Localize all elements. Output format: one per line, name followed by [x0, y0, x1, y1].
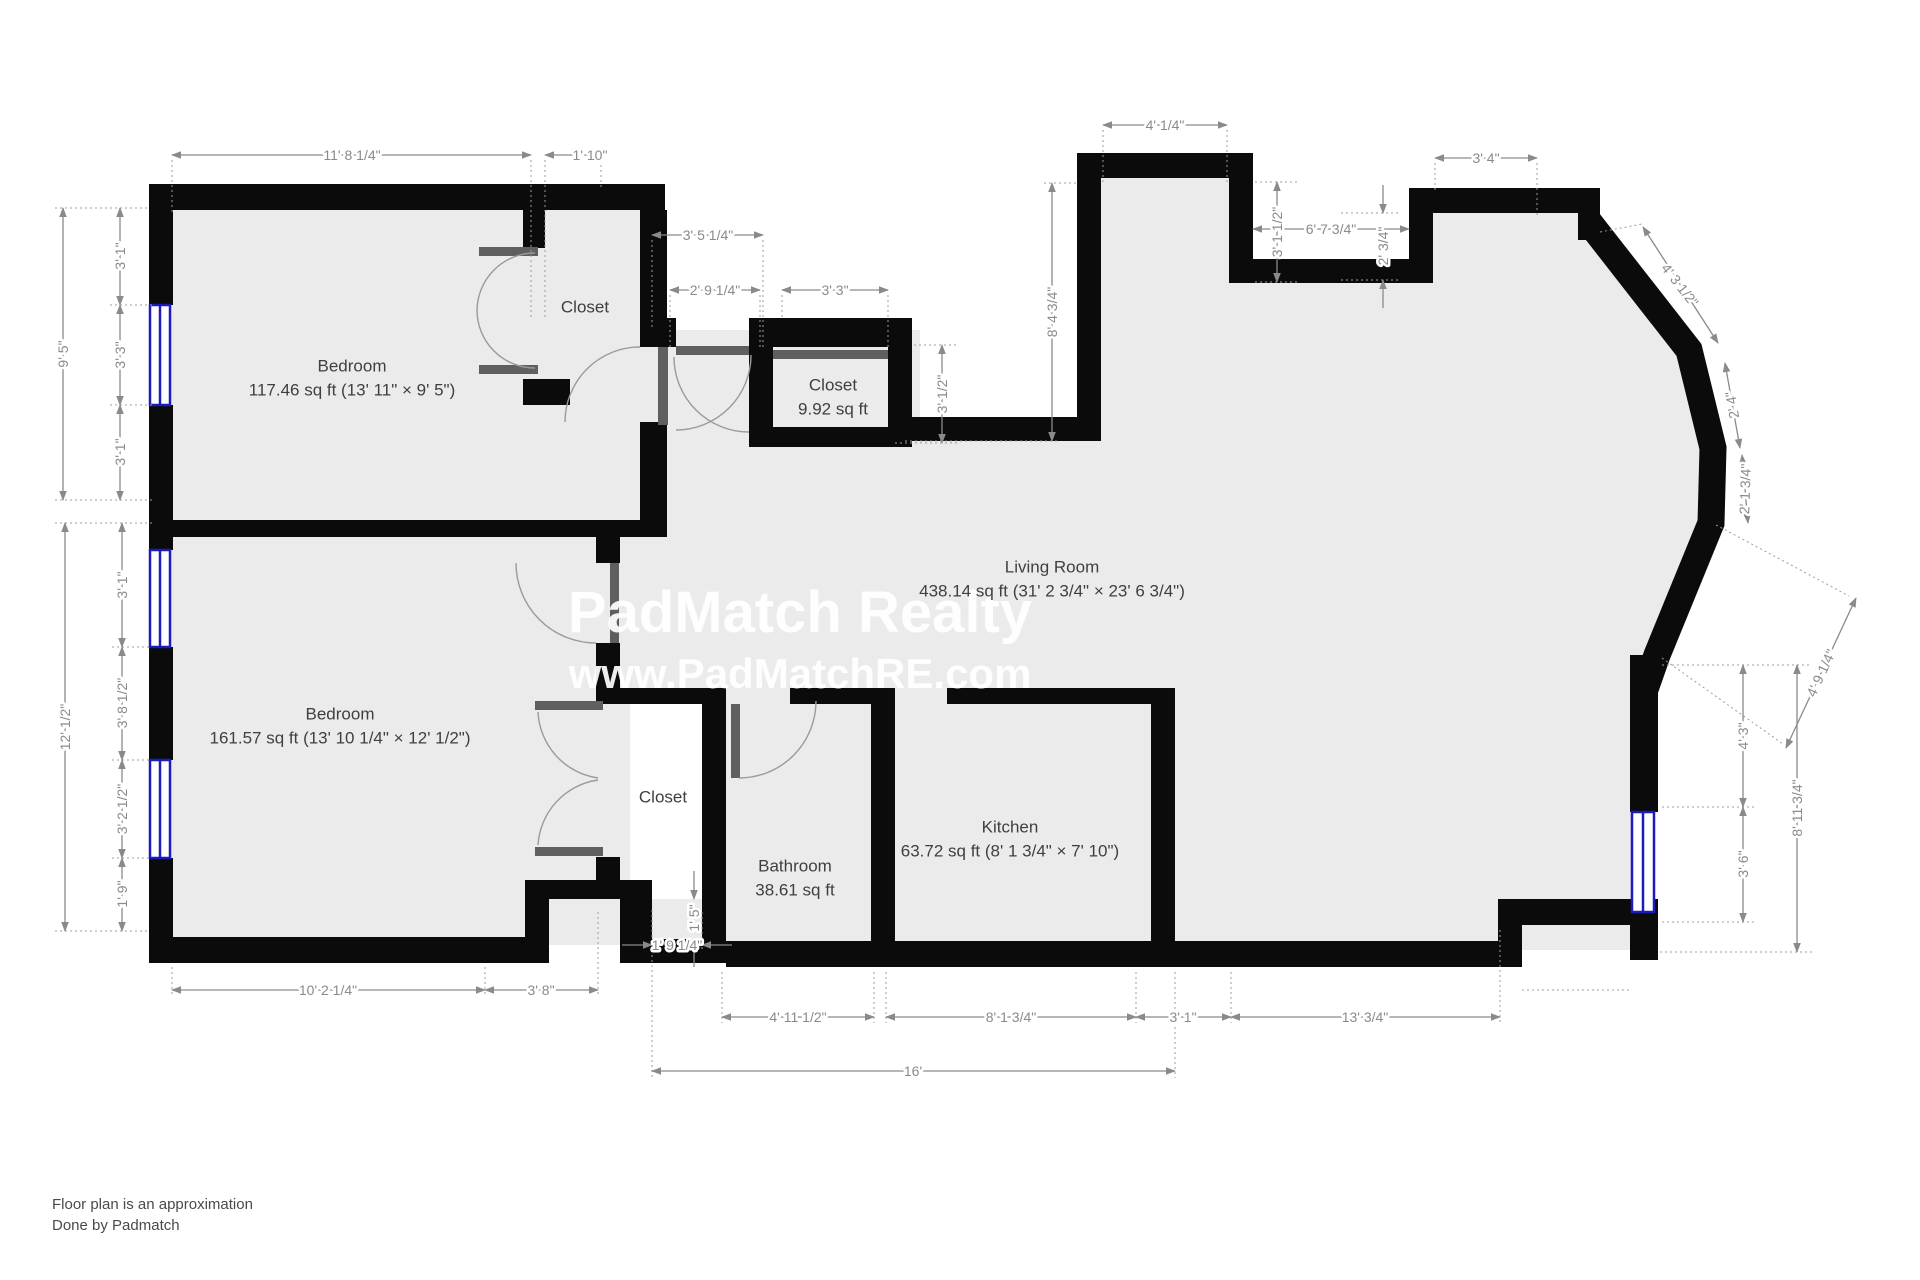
room-area-closet-hall: 9.92 sq ft — [798, 400, 868, 419]
dimension-label: 3' 1" — [1169, 1009, 1196, 1025]
dimension-label: 2' 4" — [1722, 390, 1742, 420]
dimension-label: 3' 5 1/4" — [683, 227, 733, 243]
dimension-label: 4' 11 1/2" — [769, 1009, 826, 1025]
dimension-label: 3' 1" — [114, 571, 130, 598]
room-area-living-room: 438.14 sq ft (31' 2 3/4" × 23' 6 3/4") — [919, 582, 1185, 601]
dimension-label: 3' 1 1/2" — [1269, 207, 1285, 257]
room-label-bedroom-2: Bedroom — [306, 705, 375, 724]
room-label-closet-hall: Closet — [809, 376, 857, 395]
room-area-bedroom-2: 161.57 sq ft (13' 10 1/4" × 12' 1/2") — [210, 729, 471, 748]
dimension-label: 3' 2 1/2" — [114, 784, 130, 834]
room-label-bathroom: Bathroom — [758, 857, 832, 876]
room-area-bedroom-1: 117.46 sq ft (13' 11" × 9' 5") — [249, 381, 455, 400]
room-label-kitchen: Kitchen — [982, 818, 1039, 837]
dimension-label: 2' 9 1/4" — [690, 282, 740, 298]
dimension-label: 3' 4" — [1472, 150, 1499, 166]
dimension-label: 1' 10" — [573, 147, 608, 163]
dimension-label: 12' 1/2" — [57, 704, 73, 751]
room-label-bedroom-1: Bedroom — [318, 357, 387, 376]
window — [150, 760, 170, 858]
dimension-label: 11' 8 1/4" — [323, 147, 380, 163]
footer-line-2: Done by Padmatch — [52, 1215, 253, 1236]
dimension-label: 16' — [904, 1063, 922, 1079]
dimension-label: 13' 3/4" — [1342, 1009, 1389, 1025]
room-area-kitchen: 63.72 sq ft (8' 1 3/4" × 7' 10") — [901, 842, 1119, 861]
dimension-label: 8' 11 3/4" — [1789, 779, 1805, 836]
room-area-bathroom: 38.61 sq ft — [755, 881, 835, 900]
dimension-label: 3' 3" — [821, 282, 848, 298]
window — [150, 550, 170, 647]
dimension-label: 4' 9 1/4" — [1803, 647, 1839, 700]
dimension-label: 3' 1/2" — [934, 375, 950, 414]
dimension-label: 3' 8" — [527, 982, 554, 998]
dimension-label: 1' 9 1/4" — [652, 937, 702, 953]
footer-note: Floor plan is an approximation Done by P… — [52, 1194, 253, 1236]
floor-plan: PadMatch Realty www.PadMatchRE.com — [0, 0, 1920, 1280]
window — [150, 305, 170, 405]
window — [1632, 812, 1654, 912]
dimension-label: 8' 1 3/4" — [986, 1009, 1036, 1025]
dimension-label: 9' 5" — [55, 340, 71, 367]
footer-line-1: Floor plan is an approximation — [52, 1194, 253, 1215]
dimension-label: 3' 8 1/2" — [114, 678, 130, 728]
dimension-label: 10' 2 1/4" — [299, 982, 357, 998]
dimension-label: 3' 1" — [112, 438, 128, 465]
dimension-label: 4' 3" — [1735, 722, 1751, 749]
dimension-label: 3' 1" — [112, 242, 128, 269]
dimension-label: 4' 1/4" — [1146, 117, 1185, 133]
dimension-label: 8' 4 3/4" — [1044, 287, 1060, 337]
watermark-url: www.PadMatchRE.com — [568, 650, 1032, 697]
dimension-label: 1' 9" — [114, 880, 130, 907]
dimension-label: 2' 3/4" — [1375, 227, 1391, 266]
floor-areas — [155, 165, 1704, 955]
dimension-label: 2' 1 3/4" — [1736, 463, 1754, 514]
room-label-living-room: Living Room — [1005, 558, 1100, 577]
dimension-label: 1' 5" — [686, 904, 702, 931]
dimension-label: 3' 3" — [112, 341, 128, 368]
room-label-closet-bedroom-2: Closet — [639, 788, 687, 807]
dimension-label: 3' 6" — [1735, 850, 1751, 877]
dimension-label: 6' 7 3/4" — [1306, 221, 1356, 237]
room-label-closet-bedroom-1: Closet — [561, 298, 609, 317]
